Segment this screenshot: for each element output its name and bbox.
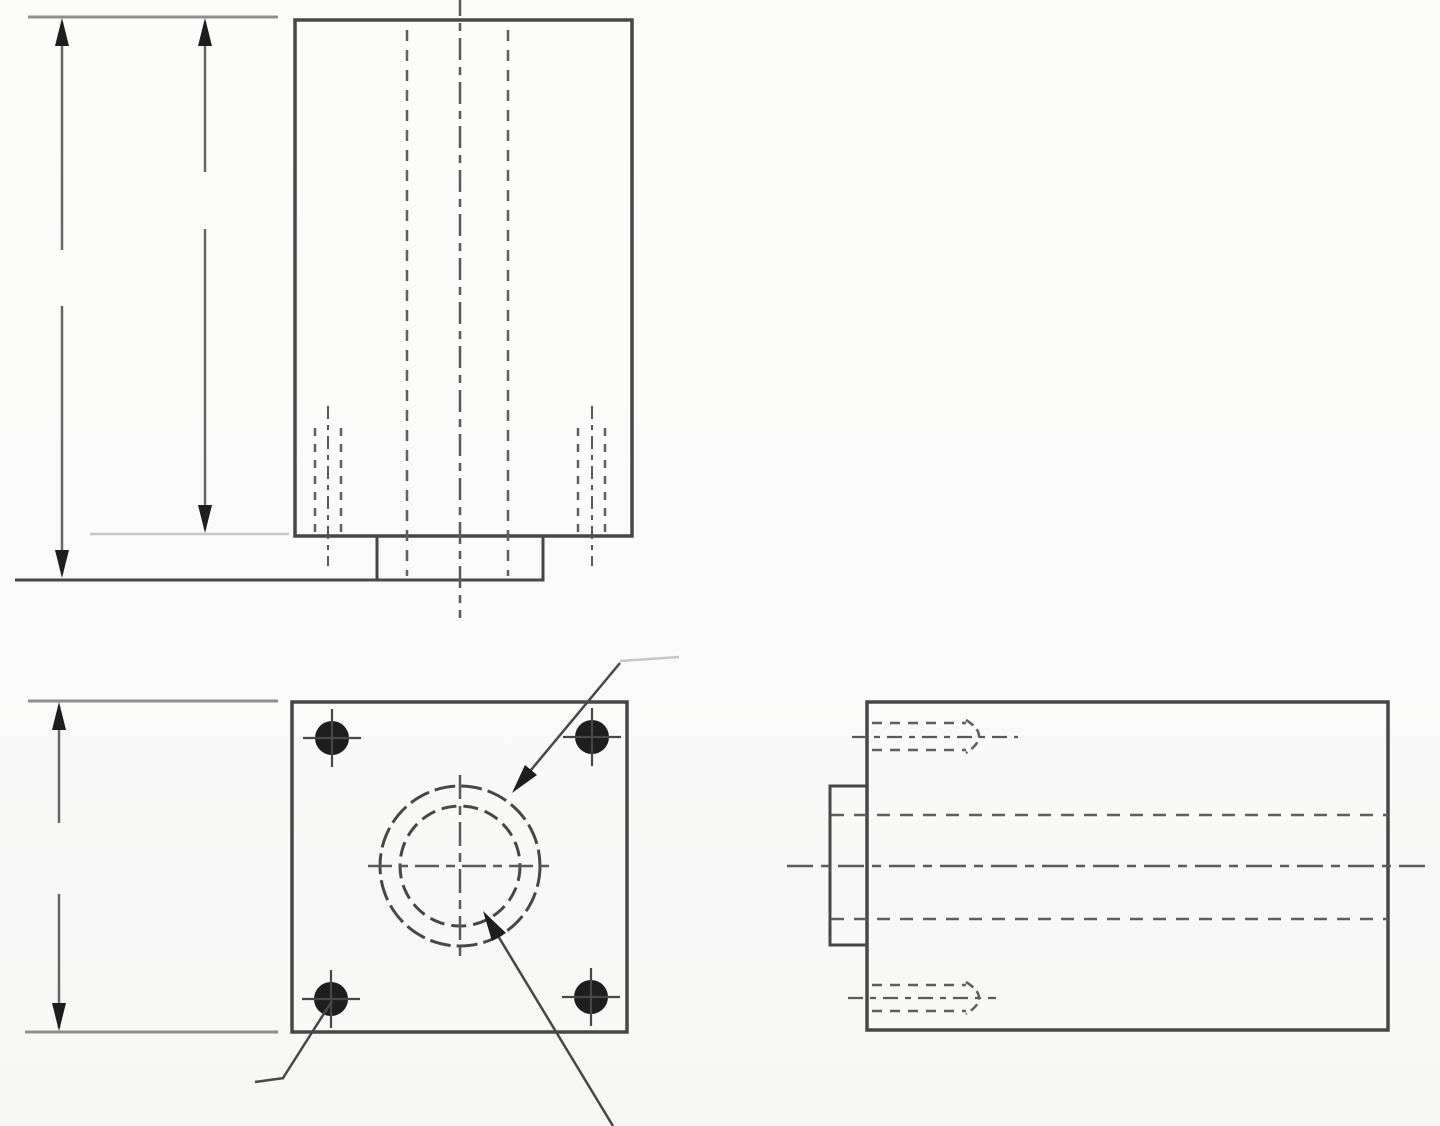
engineering-drawing-svg [0,0,1440,1126]
mount-hole-leader-tick [255,1078,284,1082]
body-outline [295,20,632,536]
plan-view [25,657,679,1126]
body-height-dim-arrow-down [198,505,212,533]
overall-height-dim-arrow-down [55,550,69,578]
height-dim-arrow-up [52,702,66,730]
bore-leader-line [489,921,613,1126]
counterbore-leader-tick [620,657,679,661]
overall-height-dim-arrow-up [55,18,69,46]
side-view [787,702,1428,1030]
front-view [15,0,632,618]
body-height-dim-arrow-up [198,18,212,46]
height-dim-arrow-down [52,1003,66,1031]
drawing-sheet [0,0,1440,1126]
